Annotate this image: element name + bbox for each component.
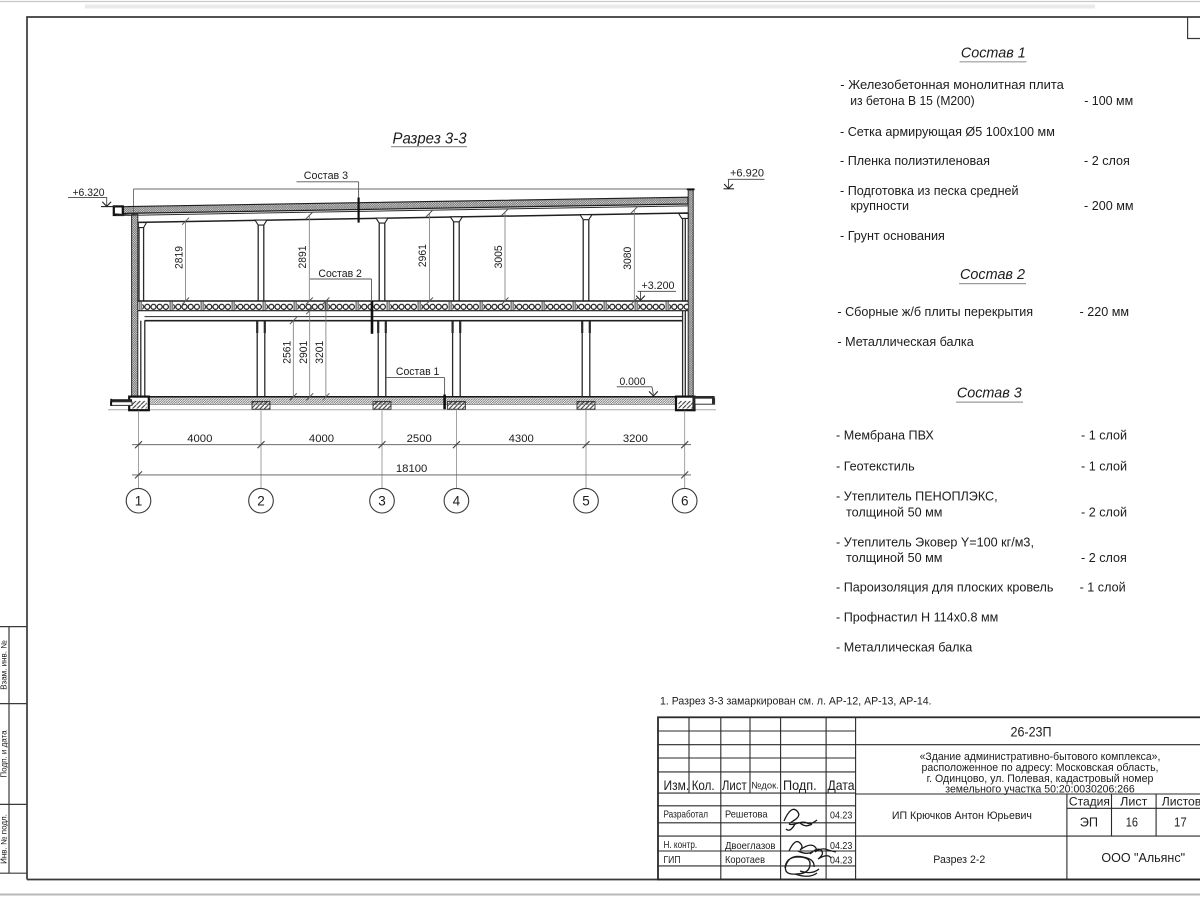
svg-text:3201: 3201 [314, 341, 326, 364]
svg-text:- 1 слой: - 1 слой [1080, 581, 1126, 595]
svg-text:2: 2 [257, 494, 265, 509]
svg-text:Лист: Лист [1120, 794, 1148, 808]
svg-text:- Утеплитель ПЕНОПЛЭКС,: - Утеплитель ПЕНОПЛЭКС, [836, 490, 998, 504]
svg-text:1: 1 [135, 494, 143, 509]
svg-text:- 200 мм: - 200 мм [1084, 199, 1134, 213]
svg-text:4000: 4000 [309, 433, 334, 445]
svg-text:2891: 2891 [297, 246, 309, 269]
svg-text:Стадия: Стадия [1069, 794, 1110, 808]
svg-text:- Пленка полиэтиленовая: - Пленка полиэтиленовая [840, 154, 990, 168]
svg-text:Разработал: Разработал [664, 808, 709, 820]
svg-text:Подп. и дата: Подп. и дата [0, 730, 9, 778]
svg-text:04.23: 04.23 [830, 810, 852, 821]
svg-text:+3.200: +3.200 [642, 280, 675, 292]
svg-text:- 1 слой: - 1 слой [1081, 460, 1127, 474]
svg-text:- Сборные ж/б плиты перекрытия: - Сборные ж/б плиты перекрытия [837, 305, 1033, 319]
svg-text:ООО "Альянс": ООО "Альянс" [1101, 850, 1185, 865]
svg-text:Разрез 3-3: Разрез 3-3 [393, 131, 467, 148]
svg-text:Состав 3: Состав 3 [304, 170, 348, 182]
svg-text:04.23: 04.23 [830, 841, 852, 852]
svg-text:- 2 слоя: - 2 слоя [1081, 551, 1127, 565]
svg-text:17: 17 [1174, 814, 1187, 829]
svg-text:2819: 2819 [174, 246, 186, 269]
svg-text:- Металлическая балка: - Металлическая балка [837, 335, 973, 349]
svg-text:0.000: 0.000 [620, 376, 646, 388]
svg-text:3005: 3005 [493, 245, 505, 268]
svg-text:Состав 2: Состав 2 [318, 268, 362, 280]
svg-text:Взам. инв. №: Взам. инв. № [0, 640, 9, 690]
svg-text:Двоеглазов: Двоеглазов [725, 841, 776, 852]
svg-text:- Железобетонная монолитная п: - Железобетонная монолитная плита [840, 78, 1064, 92]
svg-text:3200: 3200 [623, 433, 648, 445]
svg-text:крупности: крупности [851, 199, 910, 213]
svg-text:№док.: №док. [751, 780, 779, 791]
svg-text:ЭП: ЭП [1080, 814, 1098, 829]
svg-text:Разрез 2-2: Разрез 2-2 [933, 854, 985, 866]
svg-text:- 2 слоя: - 2 слоя [1084, 154, 1130, 168]
svg-text:3080: 3080 [622, 247, 634, 270]
svg-text:- Пароизоляция для плоских кро: - Пароизоляция для плоских кровель [836, 581, 1054, 595]
svg-text:Состав 3: Состав 3 [957, 386, 1022, 402]
svg-text:2561: 2561 [282, 341, 294, 364]
svg-text:Коротаев: Коротаев [725, 855, 765, 866]
svg-text:толщиной 50 мм: толщиной 50 мм [846, 506, 942, 520]
svg-text:4000: 4000 [187, 433, 212, 445]
svg-text:Состав 1: Состав 1 [961, 45, 1026, 61]
svg-text:Инв. № подл.: Инв. № подл. [0, 814, 9, 864]
svg-text:26-23П: 26-23П [1011, 724, 1052, 740]
svg-text:4300: 4300 [509, 433, 534, 445]
svg-text:Изм.: Изм. [664, 778, 690, 793]
svg-text:- Утеплитель Эковер Y=100 кг/м: - Утеплитель Эковер Y=100 кг/м3, [836, 536, 1034, 550]
svg-text:5: 5 [582, 494, 590, 509]
svg-text:Кол.: Кол. [692, 778, 715, 793]
svg-text:Состав 1: Состав 1 [396, 366, 440, 378]
svg-text:2500: 2500 [407, 433, 432, 445]
svg-text:16: 16 [1126, 814, 1138, 829]
svg-text:- Подготовка из песка средней: - Подготовка из песка средней [840, 184, 1019, 198]
svg-text:Дата: Дата [828, 778, 855, 793]
svg-text:- 100 мм: - 100 мм [1084, 94, 1133, 108]
svg-text:Решетова: Решетова [725, 810, 768, 821]
svg-text:2901: 2901 [298, 341, 310, 364]
svg-text:Листов: Листов [1162, 794, 1200, 808]
svg-text:+6.920: +6.920 [730, 167, 764, 179]
svg-text:из бетона В 15 (М200): из бетона В 15 (М200) [850, 94, 975, 108]
svg-text:3: 3 [378, 494, 386, 509]
svg-text:толщиной 50 мм: толщиной 50 мм [846, 551, 942, 565]
svg-text:1. Разрез 3-3 замаркирован см.: 1. Разрез 3-3 замаркирован см. л. АР-12,… [660, 695, 932, 707]
svg-text:ГИП: ГИП [664, 855, 681, 866]
svg-text:- Мембрана ПВХ: - Мембрана ПВХ [836, 429, 934, 443]
svg-text:ИП Крючков Антон Юрьевич: ИП Крючков Антон Юрьевич [892, 810, 1032, 822]
svg-text:04.23: 04.23 [830, 856, 852, 867]
svg-text:- 1 слой: - 1 слой [1081, 429, 1127, 443]
svg-text:6: 6 [681, 494, 689, 509]
svg-text:- 2 слой: - 2 слой [1081, 506, 1127, 520]
svg-text:18100: 18100 [396, 463, 427, 475]
svg-text:Лист: Лист [722, 778, 747, 793]
svg-text:Подп.: Подп. [783, 778, 817, 793]
svg-text:- Сетка армирующая Ø5 100х100: - Сетка армирующая Ø5 100х100 мм [840, 125, 1055, 139]
svg-text:2961: 2961 [417, 244, 429, 267]
svg-text:- Профнастил Н 114х0.8 мм: - Профнастил Н 114х0.8 мм [836, 611, 998, 625]
svg-text:- 220 мм: - 220 мм [1080, 305, 1130, 319]
svg-text:- Грунт основания: - Грунт основания [840, 229, 945, 243]
svg-text:- Геотекстиль: - Геотекстиль [836, 460, 915, 474]
svg-text:Состав 2: Состав 2 [960, 267, 1025, 283]
svg-text:- Металлическая балка: - Металлическая балка [836, 641, 972, 655]
svg-text:Н. контр.: Н. контр. [664, 840, 698, 851]
svg-text:4: 4 [453, 494, 461, 509]
